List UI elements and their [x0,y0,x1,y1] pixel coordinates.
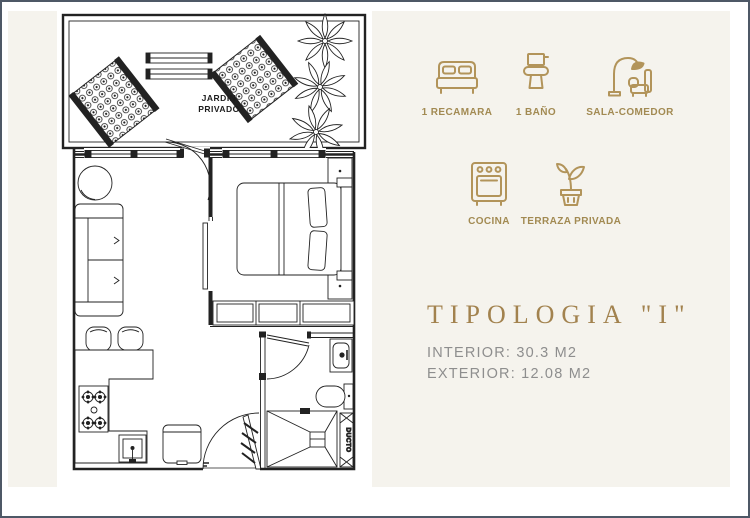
feature-label: 1 RECAMARA [422,107,493,118]
bed-icon [433,44,481,98]
stove-cooktop [79,386,108,432]
kitchen-sink [119,435,146,463]
duct-label: DUCTO [345,428,352,453]
feature-living: SALA-COMEDOR [578,44,682,118]
bed [237,178,352,280]
garden-area: JARDIN PRIVADO [63,14,365,165]
bath-door [267,335,309,379]
feature-terrace: TERRAZA PRIVADA [520,153,622,227]
toilet-plan [316,384,353,409]
shower [267,408,337,467]
floor-plan: JARDIN PRIVADO [57,11,372,505]
floor-plan-panel: JARDIN PRIVADO [57,11,372,505]
feature-label: COCINA [468,216,510,227]
living-room [75,166,123,316]
typology-block: TIPOLOGIA "I" INTERIOR: 30.3 M2 EXTERIOR… [427,300,692,385]
sofa-lamp-icon [606,44,654,98]
bedroom [210,158,354,327]
potted-plant-icon [553,153,589,207]
stool [86,327,111,351]
window [85,151,183,158]
round-table [78,166,112,200]
sofa [75,204,123,316]
exterior-area: EXTERIOR: 12.08 M2 [427,364,692,385]
duct-shaft: DUCTO [340,413,353,467]
closet [213,301,354,325]
garden-label: JARDIN [202,93,237,103]
feature-label: SALA-COMEDOR [586,107,674,118]
bath-sink [330,339,352,372]
typology-title: TIPOLOGIA "I" [427,300,692,330]
toilet-icon [521,44,551,98]
kitchen [75,327,201,465]
feature-kitchen: COCINA [447,153,531,227]
interior-area: INTERIOR: 30.3 M2 [427,343,692,364]
feature-label: TERRAZA PRIVADA [521,216,621,227]
window [223,151,325,158]
stool [118,327,143,350]
feature-label: 1 BAÑO [516,107,556,118]
garden-label: PRIVADO [198,104,240,114]
washer-bin [163,425,201,465]
feature-bathroom: 1 BAÑO [498,44,574,118]
bathroom: DUCTO [259,332,354,470]
entry-door [203,413,261,469]
feature-bedroom: 1 RECAMARA [409,44,505,118]
bedroom-wall [203,157,213,325]
stove-icon [468,153,510,207]
